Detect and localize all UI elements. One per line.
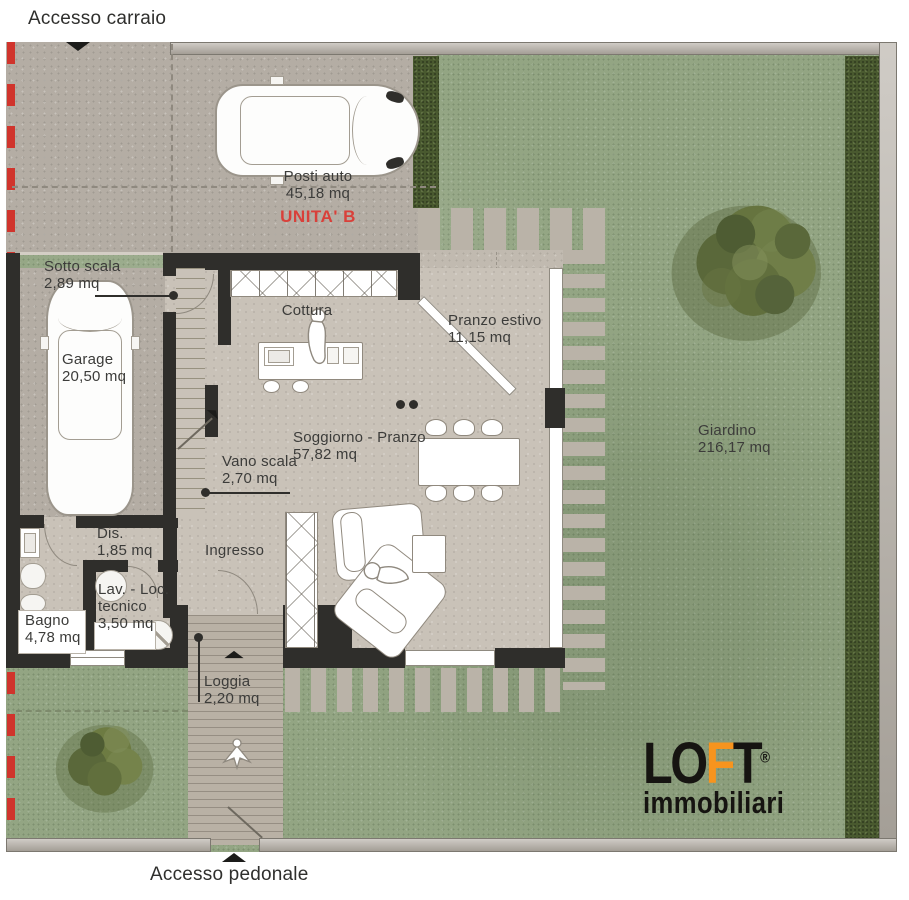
wall-garage-divider (163, 312, 176, 518)
label-pranzo-estivo: Pranzo estivo 11,15 mq (448, 313, 541, 347)
label-lav: Lav. - Loc. tecnico 3,50 mq (98, 582, 169, 632)
loft-immobiliari-logo: LOFT® immobiliari (643, 738, 784, 821)
kitchen-cabinets (230, 270, 397, 297)
loggia-entry-arrow-icon (224, 651, 243, 658)
wall-bath-top-a (6, 515, 44, 528)
boundary-wall-bottom-left (6, 838, 211, 852)
dining-table (418, 438, 520, 486)
pedonale-arrow-icon (222, 853, 246, 862)
label-accesso-pedonale: Accesso pedonale (150, 864, 308, 885)
wall-left (6, 253, 20, 668)
accesso-carraio-text: Accesso carraio (28, 8, 166, 29)
boundary-wall-right (879, 42, 897, 852)
boundary-wall-bottom-right (259, 838, 897, 852)
parking-dashed-line-v (171, 44, 173, 252)
floor-plan-page: Accesso carraio Posti auto 45,18 mq UNIT… (0, 0, 909, 900)
paving-slats-bottom (285, 668, 570, 712)
boundary-wall-top (170, 42, 897, 55)
dining-chair (425, 485, 447, 502)
label-accesso-carraio: Accesso carraio (28, 8, 166, 29)
wall-bottom-d (495, 648, 565, 668)
label-cottura: Cottura (262, 303, 352, 320)
coffee-table (412, 535, 446, 573)
wardrobe (285, 512, 318, 648)
label-giardino: Giardino 216,17 mq (698, 423, 771, 457)
tree (46, 698, 168, 820)
decor-dot (409, 400, 418, 409)
sliding-glass-door-south (405, 650, 495, 666)
wall-east-block (545, 388, 565, 428)
dining-chair (481, 485, 503, 502)
paving-slats-right (563, 250, 605, 690)
logo-subtitle: immobiliari (643, 786, 784, 821)
label-garage: Garage 20,50 mq (62, 352, 126, 386)
wall-corner-block (398, 253, 420, 300)
dining-chair (453, 485, 475, 502)
loggia-deck (188, 615, 283, 845)
label-sotto-scala: Sotto scala 2,89 mq (44, 259, 120, 293)
leader-dot (194, 633, 203, 642)
bath-sink-basin (24, 533, 36, 553)
dining-chair (425, 419, 447, 436)
label-dis: Dis. 1,85 mq (97, 526, 153, 560)
dining-chair (481, 419, 503, 436)
wall-stub (163, 268, 176, 276)
leader-dot (201, 488, 210, 497)
car-parking-roof (240, 96, 350, 165)
car-mirror (40, 336, 49, 350)
label-vano-scala: Vano scala 2,70 mq (222, 454, 297, 488)
label-ingresso: Ingresso (205, 543, 264, 560)
car-mirror (270, 76, 284, 85)
stool (263, 380, 280, 393)
car-garage-windshield (58, 304, 122, 332)
stool (292, 380, 309, 393)
leader-sottoscala (95, 295, 175, 297)
tree (668, 170, 846, 348)
kitchen-sink-basin (268, 350, 290, 363)
leader-dot (169, 291, 178, 300)
label-posti-auto: Posti auto 45,18 mq (262, 169, 374, 203)
wall-bottom-b (125, 648, 171, 668)
label-unita-b: UNITA' B (252, 207, 384, 226)
leader-loggia (198, 640, 200, 702)
decor-dot (396, 400, 405, 409)
label-soggiorno: Soggiorno - Pranzo 57,82 mq (293, 430, 426, 464)
car-mirror (131, 336, 140, 350)
dining-chair (453, 419, 475, 436)
glass-facade-east (549, 268, 563, 648)
garage-threshold (20, 252, 163, 255)
toilet (20, 563, 46, 589)
dove-icon (218, 736, 256, 772)
leader-vanoscala (205, 492, 290, 494)
label-loggia: Loggia 2,20 mq (204, 674, 260, 708)
hedge-right (845, 56, 879, 838)
cooktop-right (343, 347, 359, 364)
car-parking-windshield (352, 96, 382, 165)
label-bagno: Bagno 4,78 mq (25, 613, 81, 647)
paving-slats-top (418, 208, 605, 250)
carraio-arrow-icon (66, 42, 90, 51)
logo-wordmark: LOFT® (643, 738, 784, 790)
